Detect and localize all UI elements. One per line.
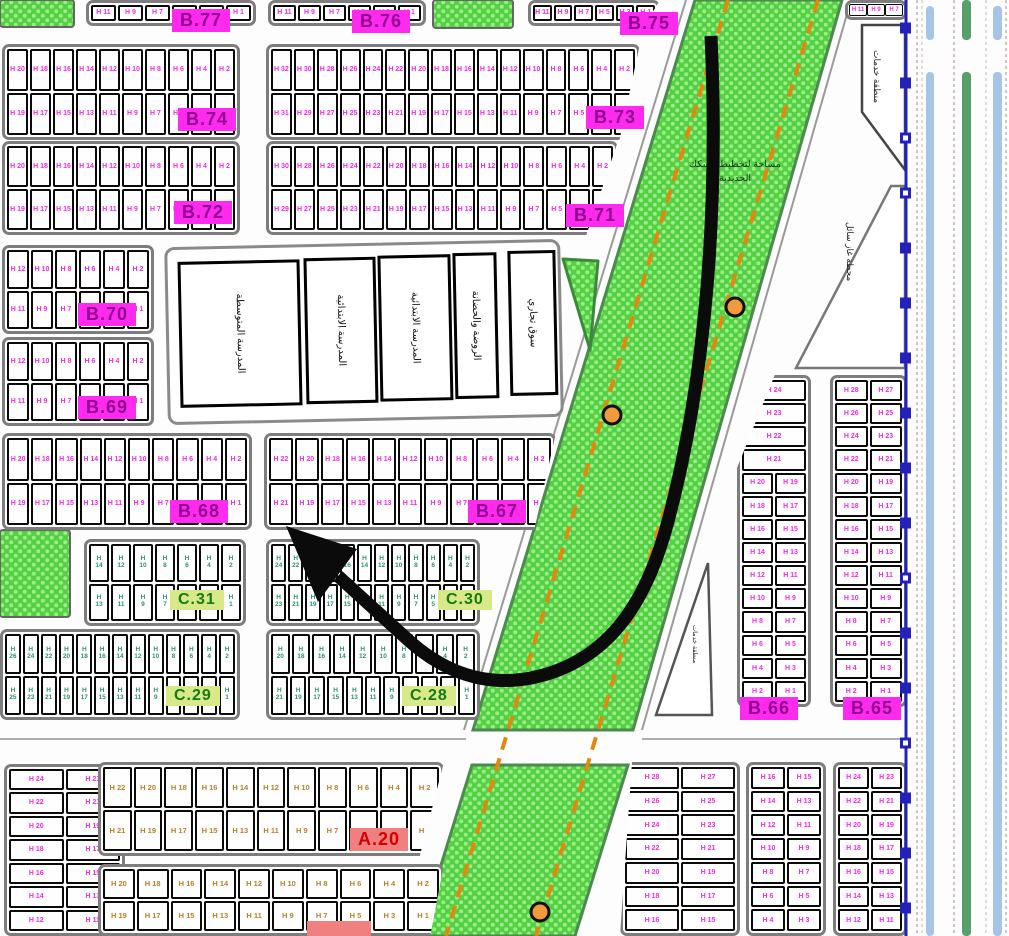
plot-row: H 18H 17	[624, 885, 736, 909]
block-label-c28: C.28	[402, 686, 456, 706]
plot-cell: H 4	[742, 658, 773, 679]
plot-cell: H 6	[177, 544, 197, 582]
plot-row: H 20H 18H 16H 14H 12H 10H 8H 6H 4H 2	[6, 48, 236, 92]
plot-cell: H 2	[214, 146, 235, 187]
plot-cell: H 8	[450, 438, 474, 481]
plot-cell: H 28	[294, 146, 315, 187]
transit-node-center	[903, 741, 908, 746]
plot-cell: H 4	[201, 634, 217, 674]
plot-cell: H 17	[137, 901, 169, 931]
plot-cell: H 18	[31, 438, 53, 481]
plot-cell: H 19	[681, 862, 735, 884]
plot-cell: H 6	[168, 146, 189, 187]
plot-cell: H 10	[424, 438, 448, 481]
plot-row: H 4H 3	[750, 908, 822, 932]
zoning-map: مساحة لتخطيط السكك الحديدية منطقة خدمات …	[0, 0, 1009, 936]
green-patch-topcenter	[433, 0, 513, 28]
plot-cell: H 15	[340, 584, 355, 622]
plot-row: H 10H 9	[750, 837, 822, 861]
plot-cell: H 15	[346, 483, 370, 526]
plot-cell: H 27	[870, 380, 903, 401]
plot-cell: H 20	[295, 438, 319, 481]
plot-cell: H 26	[835, 403, 868, 424]
plot-cell: H 10	[31, 342, 53, 381]
block-label-b69: B.69	[78, 396, 136, 419]
plot-cell: H 14	[751, 791, 785, 813]
plot-cell: H 11	[273, 5, 296, 21]
plot-cell: H 14	[838, 886, 869, 908]
plot-cell: H 21	[288, 584, 303, 622]
school-box-label: المدرسة الابتدائية	[335, 295, 347, 367]
plot-cell: H 11	[533, 5, 552, 21]
plot-row: H 20H 19	[741, 472, 807, 495]
plot-cell: H 15	[53, 189, 74, 230]
plot-cell: H 5	[870, 635, 903, 656]
plot-cell: H 14	[9, 886, 64, 907]
school-box-label: المدرسة المتوسطة	[234, 294, 247, 374]
plot-cell: H 22	[742, 426, 806, 447]
plot-cell: H 8	[145, 49, 166, 91]
plot-cell: H 2	[219, 634, 235, 674]
plot-cell: H 10	[391, 544, 406, 582]
plot-cell: H 6	[340, 869, 372, 899]
plot-block-c30: H 24H 22H 20H 18H 16H 14H 12H 10H 8H 6H …	[266, 539, 480, 626]
plot-cell: H 13	[357, 584, 372, 622]
plot-cell: H 2	[221, 544, 241, 582]
plot-cell: H 8	[318, 767, 347, 808]
plot-cell: H 12	[238, 869, 270, 899]
plot-cell: H 11	[7, 383, 29, 422]
plot-cell: H 7	[55, 383, 77, 422]
plot-cell: H 14	[204, 869, 236, 899]
plot-row: H 22H 21	[834, 448, 903, 471]
plot-cell: H 19	[775, 473, 806, 494]
plot-cell: H 16	[625, 909, 679, 931]
plot-cell: H 16	[742, 519, 773, 540]
plot-cell: H 4	[751, 909, 785, 931]
plot-cell: H 8	[751, 862, 785, 884]
plot-row: H 14H 13	[837, 885, 903, 909]
transit-node	[900, 738, 911, 749]
plot-block-br1: H 28H 27H 26H 25H 24H 23H 22H 21H 20H 19…	[620, 762, 740, 936]
block-label-c30: C.30	[438, 590, 492, 610]
plot-cell: H 12	[7, 250, 29, 289]
plot-cell: H 18	[838, 838, 869, 860]
plot-cell: H 15	[681, 909, 735, 931]
plot-cell: H 21	[385, 93, 406, 135]
plot-cell: H 17	[431, 93, 452, 135]
plot-cell: H 24	[625, 814, 679, 836]
plot-cell: H 28	[835, 380, 868, 401]
plot-cell: H 21	[103, 810, 132, 851]
plot-cell: H 16	[346, 438, 370, 481]
plot-cell: H 15	[53, 93, 74, 135]
plot-row: H 20H 18H 16H 14H 12H 10H 8H 6H 4H 2	[6, 145, 236, 188]
plot-cell: H 7	[574, 5, 593, 21]
plot-row: H 10H 9	[741, 587, 807, 610]
plot-cell: H 24	[23, 634, 39, 674]
plot-cell: H 14	[477, 49, 498, 91]
plot-cell: H 10	[287, 767, 316, 808]
plot-cell: H 24	[271, 544, 286, 582]
plot-cell: H 11	[7, 291, 29, 330]
plot-cell: H 29	[294, 93, 315, 135]
plot-cell: H 2	[456, 634, 475, 674]
plot-cell: H 13	[871, 886, 902, 908]
plot-row: H 8H 7	[750, 861, 822, 885]
plot-cell: H 12	[130, 634, 146, 674]
plot-cell: H 9	[133, 584, 153, 622]
plot-cell: H 2	[527, 438, 551, 481]
plot-cell: H 4	[199, 544, 219, 582]
plot-cell: H 20	[305, 544, 320, 582]
school-box-2: المدرسة الابتدائية	[377, 254, 453, 401]
plot-cell: H 12	[99, 49, 120, 91]
plot-cell: H 28	[317, 49, 338, 91]
plot-cell: H 2	[410, 767, 439, 808]
plot-cell: H 13	[112, 676, 128, 716]
plot-cell: H 12	[99, 146, 120, 187]
plot-cell: H 10	[133, 544, 153, 582]
plot-cell: H 20	[103, 869, 135, 899]
plot-cell: H 11	[238, 901, 270, 931]
plot-cell: H 8	[395, 634, 414, 674]
plot-row: H 14H 13	[750, 790, 822, 814]
plot-cell: H 13	[870, 542, 903, 563]
plot-cell: H 18	[431, 49, 452, 91]
plot-cell: H 20	[625, 862, 679, 884]
plot-cell: H 11	[99, 93, 120, 135]
plot-cell: H 9	[31, 383, 53, 422]
plot-cell: H 12	[751, 814, 785, 836]
plot-cell: H 20	[408, 49, 429, 91]
green-triangle-school	[563, 259, 598, 350]
plot-cell: H 13	[455, 189, 476, 230]
plot-cell: H 13	[372, 483, 396, 526]
plot-cell: H 15	[327, 676, 344, 716]
plot-cell: H 20	[9, 816, 64, 837]
plot-row: H 18H 17	[834, 495, 903, 518]
school-box-label: المدرسة الابتدائية	[409, 292, 421, 364]
block-label-b73: B.73	[586, 106, 644, 129]
block-label-a20: A.20	[350, 828, 408, 851]
plot-cell: H 22	[103, 767, 132, 808]
plot-cell: H 25	[681, 791, 735, 813]
plot-cell: H 1	[219, 676, 235, 716]
plot-cell: H 7	[885, 4, 903, 16]
plot-cell: H 22	[838, 791, 869, 813]
plot-cell: H 11	[398, 483, 422, 526]
plot-cell: H 13	[346, 676, 363, 716]
plot-row: H 32H 30H 28H 26H 24H 22H 20H 18H 16H 14…	[270, 48, 636, 92]
school-box-label: سوق تجاري	[527, 298, 539, 347]
plot-cell: H 24	[835, 426, 868, 447]
plot-row: H 12H 11	[750, 813, 822, 837]
transit-node-center	[903, 191, 908, 196]
plot-cell: H 21	[363, 189, 384, 230]
plot-block-br2: H 16H 15H 14H 13H 12H 11H 10H 9H 8H 7H 6…	[746, 762, 826, 936]
plot-cell: H 21	[41, 676, 57, 716]
plot-cell: H 14	[89, 544, 109, 582]
plot-cell: H 22	[835, 449, 868, 470]
plot-cell: H 6	[415, 634, 434, 674]
plot-cell: H 10	[31, 250, 53, 289]
plot-cell: H 22	[9, 792, 64, 813]
plot-cell: H 23	[681, 814, 735, 836]
green-patch-midleft	[0, 530, 70, 617]
plot-row: H 28H 27	[624, 766, 736, 790]
plot-cell: H 17	[30, 93, 51, 135]
transit-node	[900, 298, 911, 309]
plot-cell: H 15	[195, 810, 224, 851]
plot-cell: H 24	[742, 380, 806, 401]
plot-cell: H 10	[751, 838, 785, 860]
plot-cell: H 10	[500, 146, 521, 187]
plot-row: H 31H 29H 27H 25H 23H 21H 19H 17H 15H 13…	[270, 92, 636, 136]
plot-cell: H 7	[145, 93, 166, 135]
plot-cell: H 18	[76, 634, 92, 674]
plot-cell: H 12	[500, 49, 521, 91]
plot-cell: H 4	[191, 146, 212, 187]
school-complex: المدرسة المتوسطةالمدرسة الابتدائيةالمدرس…	[164, 239, 564, 425]
plot-cell: H 7	[523, 189, 544, 230]
plot-cell: H 4	[835, 658, 868, 679]
plot-cell: H 17	[323, 584, 338, 622]
plot-cell: H 7	[323, 5, 346, 21]
plot-cell: H 6	[426, 544, 441, 582]
plot-cell: H 8	[55, 250, 77, 289]
plot-row: H 19H 17H 15H 13H 11H 9H 7H 5H 3H 1	[102, 900, 440, 932]
plot-row: H 20H 18H 16H 14H 12H 10H 8H 6H 4H 2	[6, 437, 248, 482]
plot-cell: H 6	[835, 635, 868, 656]
plot-row: H 21	[741, 448, 807, 471]
plot-cell: H 3	[373, 901, 405, 931]
plot-cell: H 19	[305, 584, 320, 622]
plot-cell: H 12	[742, 565, 773, 586]
plot-row: H 12H 10H 8H 6H 4H 2	[6, 341, 150, 382]
plot-cell: H 13	[89, 584, 109, 622]
plot-cell: H 15	[454, 93, 475, 135]
plot-cell: H 24	[838, 767, 869, 789]
plot-cell: H 11	[500, 93, 521, 135]
plot-cell: H 12	[7, 342, 29, 381]
plot-cell: H 17	[871, 838, 902, 860]
plot-cell: H 9	[31, 291, 53, 330]
plot-cell: H 23	[23, 676, 39, 716]
plot-row: H 20H 19	[624, 861, 736, 885]
plot-cell: H 11	[787, 814, 821, 836]
plot-cell: H 13	[80, 483, 102, 526]
school-box-3: الروضة والحضانة	[452, 252, 499, 399]
plot-row: H 20H 19	[837, 813, 903, 837]
plot-cell: H 11	[775, 565, 806, 586]
plot-cell: H 20	[835, 473, 868, 494]
plot-row: H 26H 25	[624, 790, 736, 814]
plot-block-c31: H 14H 12H 10H 8H 6H 4H 2H 13H 11H 9H 7H …	[84, 539, 246, 626]
plot-row: H 6H 5	[741, 634, 807, 657]
plot-cell: H 9	[287, 810, 316, 851]
plot-block-br3: H 24H 23H 22H 21H 20H 19H 18H 17H 16H 15…	[833, 762, 907, 936]
plot-row: H 10H 9	[834, 587, 903, 610]
plot-cell: H 8	[55, 342, 77, 381]
plot-cell: H 27	[317, 93, 338, 135]
plot-cell: H 12	[838, 909, 869, 931]
plot-row: H 22H 21	[837, 790, 903, 814]
plot-cell: H 2	[225, 438, 247, 481]
plot-cell: H 13	[76, 189, 97, 230]
plot-cell: H 16	[94, 634, 110, 674]
services-area-label: منطقة خدمات	[872, 50, 882, 103]
plot-cell: H 6	[751, 886, 785, 908]
plot-cell: H 17	[30, 189, 51, 230]
plot-cell: H 21	[870, 449, 903, 470]
plot-cell: H 11	[91, 5, 116, 21]
plot-block-b77r: H 11H 9H 7H 5H 3H 1	[86, 0, 256, 26]
plot-cell: H 6	[476, 438, 500, 481]
plot-cell: H 18	[321, 438, 345, 481]
block-label-b76: B.76	[352, 10, 410, 33]
plot-cell: H 2	[460, 544, 475, 582]
services-area-label-2: منطقة خدمات	[690, 625, 698, 663]
plot-cell: H 15	[55, 483, 77, 526]
plot-cell: H 11	[871, 909, 902, 931]
plot-cell: H 5	[775, 635, 806, 656]
plot-cell: H 14	[835, 542, 868, 563]
plot-row: H 16H 15	[624, 908, 736, 932]
school-box-0: المدرسة المتوسطة	[177, 259, 302, 408]
plot-cell: H 26	[5, 634, 21, 674]
plot-cell: H 16	[432, 146, 453, 187]
plot-cell: H 14	[80, 438, 102, 481]
plot-cell: H 20	[386, 146, 407, 187]
plot-row: H 26H 25	[834, 402, 903, 425]
plot-cell: H 9	[787, 838, 821, 860]
plot-cell: H 8	[408, 544, 423, 582]
plot-cell: H 11	[111, 584, 131, 622]
plot-cell: H 12	[835, 565, 868, 586]
plot-cell: H 19	[871, 814, 902, 836]
gas-station-label: محطة غاز سائل	[845, 222, 855, 281]
plot-cell: H 14	[455, 146, 476, 187]
plot-cell: H 1	[407, 901, 439, 931]
plot-cell: H 19	[408, 93, 429, 135]
plot-cell: H 15	[775, 519, 806, 540]
block-label-b74: B.74	[178, 108, 236, 131]
plot-cell: H 1	[527, 483, 551, 526]
plot-row: H 26H 24H 22H 20H 18H 16H 14H 12H 10H 8H…	[4, 633, 236, 675]
plot-cell: H 16	[53, 146, 74, 187]
plot-cell: H 4	[191, 49, 212, 91]
plot-row: H 23	[741, 402, 807, 425]
block-label-b71: B.71	[566, 204, 624, 227]
plot-cell: H 14	[76, 146, 97, 187]
plot-cell: H 17	[164, 810, 193, 851]
plot-cell: H 4	[591, 49, 612, 91]
plot-row: H 6H 5	[750, 885, 822, 909]
plot-cell: H 7	[775, 611, 806, 632]
plot-row: H 16H 15	[834, 518, 903, 541]
plot-cell: H 21	[871, 791, 902, 813]
plot-row: H 4H 3	[741, 657, 807, 680]
plot-cell: H 20	[838, 814, 869, 836]
plot-cell: H 27	[681, 767, 735, 789]
plot-row: H 22	[741, 425, 807, 448]
plot-cell: H 16	[53, 49, 74, 91]
plot-cell: H 20	[271, 634, 290, 674]
plot-cell: H 11	[870, 565, 903, 586]
plot-row: H 22H 20H 18H 16H 14H 12H 10H 8H 6H 4H 2	[268, 437, 552, 482]
plot-cell: H 16	[454, 49, 475, 91]
transit-node	[900, 353, 911, 364]
plot-cell: H 15	[432, 189, 453, 230]
plot-cell: H 7	[55, 291, 77, 330]
plot-cell: H 6	[79, 342, 101, 381]
plot-block-c29: H 26H 24H 22H 20H 18H 16H 14H 12H 10H 8H…	[0, 629, 240, 720]
plot-cell: H 18	[30, 49, 51, 91]
plot-cell: H 1	[221, 584, 241, 622]
plot-cell: H 6	[742, 635, 773, 656]
plot-cell: H 4	[569, 146, 590, 187]
plot-row: H 11H 9H 7	[849, 4, 903, 16]
plot-cell: H 9	[298, 5, 321, 21]
plot-cell: H 14	[333, 634, 352, 674]
block-label-c29: C.29	[166, 686, 220, 706]
plot-cell: H 11	[365, 676, 382, 716]
plot-cell: H 16	[835, 519, 868, 540]
plot-row: H 12H 11	[741, 564, 807, 587]
block-label-b68: B.68	[170, 500, 228, 523]
plot-cell: H 8	[145, 146, 166, 187]
plot-cell: H 7	[787, 862, 821, 884]
plot-cell: H 22	[385, 49, 406, 91]
school-box-label: الروضة والحضانة	[470, 291, 482, 361]
plot-row: H 20H 18H 16H 14H 12H 10H 8H 6H 4H 2	[270, 633, 476, 675]
plot-cell: H 29	[271, 189, 292, 230]
plot-cell: H 16	[838, 862, 869, 884]
plot-cell: H 6	[568, 49, 589, 91]
plot-cell: H 2	[127, 250, 149, 289]
plot-cell: H 10	[374, 634, 393, 674]
plot-cell: H 19	[295, 483, 319, 526]
plot-cell: H 17	[409, 189, 430, 230]
plot-cell: H 13	[226, 810, 255, 851]
plot-row: H 20H 19	[834, 472, 903, 495]
plot-cell: H 14	[357, 544, 372, 582]
plot-cell: H 16	[9, 863, 64, 884]
plot-row: H 24H 23	[837, 766, 903, 790]
plot-cell: H 8	[546, 49, 567, 91]
plot-row: H 6H 5	[834, 634, 903, 657]
plot-cell: H 7	[870, 611, 903, 632]
plot-row: H 18H 17	[741, 495, 807, 518]
plot-cell: H 6	[546, 146, 567, 187]
plot-cell: H 18	[323, 544, 338, 582]
transit-node	[900, 188, 911, 199]
plot-cell: H 17	[31, 483, 53, 526]
plot-cell: H 19	[290, 676, 307, 716]
plot-cell: H 23	[870, 426, 903, 447]
green-corridor-label: مساحة لتخطيط السكك الحديدية	[655, 158, 815, 187]
plot-cell: H 17	[76, 676, 92, 716]
pylon-marker	[726, 298, 744, 316]
plot-cell: H 14	[226, 767, 255, 808]
plot-cell: H 9	[122, 189, 143, 230]
plot-cell: H 11	[257, 810, 286, 851]
plot-cell: H 8	[835, 611, 868, 632]
plot-cell: H 11	[849, 4, 867, 16]
plot-cell: H 27	[294, 189, 315, 230]
plot-cell: H 9	[118, 5, 143, 21]
